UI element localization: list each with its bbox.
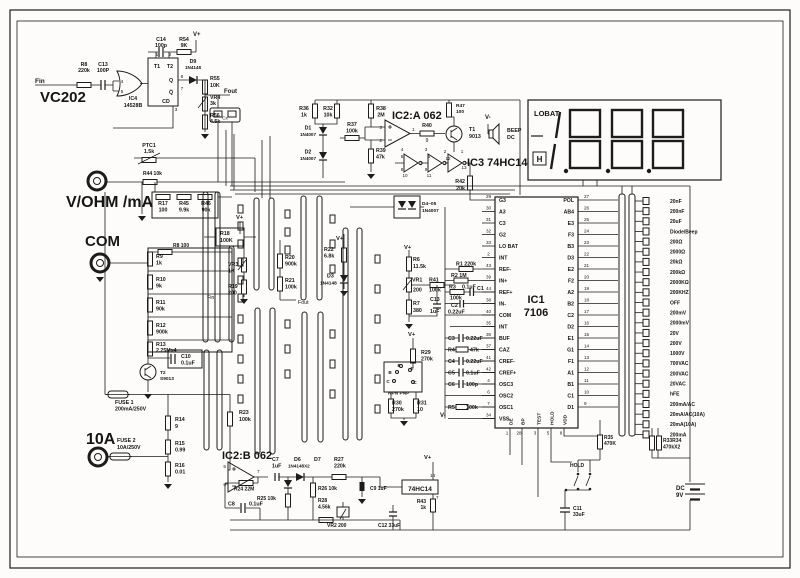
r23-val: 100k — [239, 417, 251, 423]
r3-val: 100k — [450, 296, 462, 302]
c11-val: 33uF — [573, 512, 585, 518]
range-item-18: 20VAC — [670, 382, 686, 388]
vr4-val: 3k — [210, 101, 216, 107]
d6-name: D6 — [294, 457, 301, 463]
cx-pad-right — [228, 111, 236, 117]
range-item-9: 200KHZ — [670, 290, 689, 296]
ground-symbol — [340, 291, 348, 296]
ic1-bpin-name-TEST: TEST — [537, 413, 543, 425]
transistor-socket-box — [384, 362, 422, 392]
switch-wafer-bar — [302, 312, 307, 442]
c9-electrolytic-icon — [360, 482, 365, 491]
ic1-lpin-num-41: 41 — [486, 355, 492, 360]
r56-val: 4.5k — [210, 119, 220, 125]
switch-wafer-bar — [204, 350, 209, 450]
switch-contact — [238, 375, 243, 383]
ic1-lpin-num-44: 44 — [486, 286, 492, 291]
r20-val: 900k — [285, 262, 297, 268]
switch-contact — [285, 345, 290, 353]
range-contact — [643, 411, 649, 418]
ic1-rpin-name-21: E2 — [568, 267, 574, 273]
range-contact — [643, 309, 649, 316]
switch-contact — [238, 222, 243, 230]
com-jack-label: COM — [85, 233, 120, 250]
ic1-lpin-num-42: 42 — [486, 367, 492, 372]
switch-contact — [285, 246, 290, 254]
ic1-lpin-name-44: REF+ — [499, 290, 512, 296]
vplus-a: V+ — [236, 215, 244, 221]
ic1-lpin-num-2: 2 — [487, 252, 490, 257]
range-contact — [643, 269, 649, 276]
hold-label: HOLD — [570, 463, 585, 469]
d2-val: 1N4007 — [300, 156, 317, 161]
inverter-icons — [404, 154, 466, 172]
range-contact — [643, 329, 649, 336]
r27-name: R27 — [334, 457, 344, 463]
pin-c2: C — [413, 380, 417, 385]
ground-symbol — [164, 484, 172, 489]
ic1-rpin-num-19: 19 — [584, 286, 590, 291]
switch-wafer-bar — [357, 228, 362, 440]
a10-jack — [89, 448, 107, 466]
ground-symbol — [400, 421, 408, 426]
ic1-rpin-num-24: 24 — [584, 229, 590, 234]
beep-l2: DC — [507, 135, 515, 141]
ic4-t1: T1 — [154, 64, 160, 70]
ic1-bpin-num-5: 5 — [547, 431, 550, 436]
c2-val: 0.22uF — [448, 310, 466, 316]
ic1-lpin-name-41: CREF- — [499, 359, 515, 365]
nine-v-label: 9V — [676, 493, 683, 499]
range-contact — [643, 258, 649, 265]
switch-contact — [375, 315, 380, 323]
switch-contact — [285, 228, 290, 236]
d3-name: D3 — [327, 274, 334, 280]
ic1-rpin-num-13: 13 — [584, 355, 590, 360]
ic4-pin6: 6 — [181, 74, 184, 80]
d3-val: 1N4148 — [320, 281, 337, 287]
ic1-lpin-num-32: 32 — [486, 229, 492, 234]
r3334-name: R33R34 — [663, 438, 682, 444]
r28-val: 4.56k — [318, 505, 331, 511]
range-item-13: 20V — [670, 331, 680, 337]
ic1-rpin-name-20: F2 — [568, 279, 574, 285]
ic1-lpin-name-38: IN- — [499, 302, 506, 308]
range-item-21: 20mA/AC(10A) — [670, 412, 705, 418]
c13b-val: 1uF — [430, 309, 440, 315]
ic1-lpin-name-33: LO BAT — [499, 244, 519, 250]
decimal-point — [564, 169, 568, 173]
r6-name: R6 — [413, 257, 420, 263]
r21-val: 100k — [285, 285, 297, 291]
range-contact — [643, 299, 649, 306]
fin2-label: Fin — [207, 295, 214, 301]
dc-label: DC — [676, 486, 685, 492]
c2-name: C2 — [451, 303, 458, 309]
switch-contact — [330, 265, 335, 273]
switch-contact — [330, 330, 335, 338]
range-item-0: 20nF — [670, 199, 682, 205]
t2-name: T2 — [160, 370, 166, 376]
vplus-b: V+ — [336, 236, 344, 242]
ic1-lpin-name-37: CAZ — [499, 348, 510, 354]
ic1-rpin-name-14: G1 — [567, 348, 574, 354]
switch-contact — [330, 390, 335, 398]
vplus-c: V+ — [404, 245, 412, 251]
fuse2-name: FUSE 2 — [117, 438, 136, 444]
vminus-a: V- — [485, 115, 491, 121]
r5-val: 100k — [466, 405, 478, 411]
ic1-lpin-name-4: OSC3 — [499, 382, 513, 388]
ic1-bpin-num-1: 1 — [506, 431, 509, 436]
range-item-5: 2000Ω — [670, 250, 685, 256]
c10-val: 0.1uF — [181, 361, 196, 367]
inv-p12: 12 — [445, 156, 451, 161]
r7-val: 380 — [413, 308, 422, 314]
c3-val: 0.22uF — [466, 336, 484, 342]
r14-val: 9 — [175, 424, 178, 430]
d9-val: 1N4148 — [185, 65, 202, 70]
vplus-e: V+ — [408, 332, 416, 338]
switch-wafer-bar — [255, 308, 260, 454]
vplus-osc: V+ — [193, 32, 201, 38]
r25-label: R25 10k — [257, 496, 276, 502]
ic1-bpin-name-HOLD: HOLD — [550, 411, 556, 425]
ic4-pin2: 2 — [169, 52, 172, 58]
inv-p6: 6 — [401, 154, 404, 159]
ic2b-label: IC2:B 062 — [222, 450, 272, 462]
r30-val: 270k — [392, 407, 404, 413]
switch-contact — [238, 395, 243, 403]
r8-val: 220k — [78, 68, 90, 74]
schematic-page: VC202 V/OHM /mA COM 10A IC2:A 062 IC2:B … — [0, 0, 800, 578]
r12-val: 900k — [156, 330, 168, 336]
ground-symbol — [144, 394, 152, 399]
switch-wafer-bar — [203, 192, 208, 342]
ic1-bpin-name-DE: DE — [509, 418, 515, 425]
range-item-7: 200kΩ — [670, 270, 685, 276]
ic4-t2: T2 — [167, 64, 173, 70]
r17-val: 100 — [159, 208, 168, 214]
switch-wafer-bar — [301, 196, 306, 300]
r40-name: R40 — [422, 123, 432, 129]
c7-name: C7 — [272, 457, 279, 463]
range-contact — [643, 248, 649, 255]
d45-val: 1N4007 — [422, 208, 439, 214]
switch-contact — [330, 360, 335, 368]
r15-name: R15 — [175, 441, 185, 447]
ic1-lpin-name-40: COM — [499, 313, 511, 319]
decimal-point — [606, 169, 610, 173]
ground-symbol — [201, 134, 209, 139]
r39-name: R39 — [376, 148, 386, 154]
range-item-8: 2000KΩ — [670, 280, 689, 286]
beep-l1: BEEP — [507, 128, 522, 134]
ic1-rpin-num-21: 21 — [584, 263, 590, 268]
switch-wafer-bar — [254, 198, 259, 290]
pin-e2: E — [410, 366, 413, 371]
ic1-rpin-num-25: 25 — [584, 217, 590, 222]
fout-osc: Fout — [224, 89, 237, 95]
schematic-canvas: VC202 V/OHM /mA COM 10A IC2:A 062 IC2:B … — [0, 0, 800, 578]
r36-val: 1k — [301, 113, 307, 119]
vminus-b: V- — [440, 413, 446, 419]
r46-val: 90k — [202, 208, 211, 214]
ic1-lpin-name-6: OSC2 — [499, 394, 513, 400]
ic1-lpin-num-29: 29 — [486, 194, 492, 199]
c5-name: C5 — [448, 371, 455, 377]
ic2a-label: IC2:A 062 — [392, 110, 442, 122]
vohm-jack-label: V/OHM /mA — [66, 194, 154, 211]
ic1-bpin-num-8: 8 — [560, 431, 563, 436]
r41-val: 100k — [429, 288, 441, 294]
ic1-rpin-name-17: C2 — [567, 313, 574, 319]
r3334-val: 470kX2 — [663, 445, 680, 451]
range-contact — [643, 360, 649, 367]
r19-name: R19 — [228, 284, 238, 290]
switch-contact — [375, 375, 380, 383]
ic1-lpin-name-31: C3 — [499, 221, 506, 227]
lobat-label: LOBAT — [534, 109, 560, 118]
r2-label: R2 1M — [451, 273, 467, 279]
r19-val: 200 — [228, 291, 237, 297]
ic1-rpin-num-18: 18 — [584, 298, 590, 303]
r32-val: 10k — [324, 113, 333, 119]
pin-e1: E — [397, 363, 400, 368]
range-item-22: 20mA(10A) — [670, 422, 696, 428]
inv-p8: 8 — [401, 167, 404, 172]
r28-name: R28 — [318, 498, 327, 504]
ic1-lpin-name-7: OSC1 — [499, 405, 513, 411]
ic1-rpin-name-10: C1 — [567, 394, 574, 400]
range-contact — [643, 350, 649, 357]
r5-name: R5 — [448, 405, 455, 411]
switch-contact — [330, 215, 335, 223]
opb-pin5: 5 — [223, 464, 226, 470]
hc14-pin7: 7 — [436, 495, 439, 500]
gate-pin5: 5 — [121, 89, 124, 95]
r10-name: R10 — [156, 277, 166, 283]
ic1-lpin-num-43: 43 — [486, 263, 492, 268]
ic1-rpin-num-16: 16 — [584, 321, 590, 326]
r20-name: R20 — [285, 255, 295, 261]
range-contact — [643, 319, 649, 326]
range-item-19: hFE — [670, 392, 680, 398]
switch-contact — [285, 210, 290, 218]
ic1-lpin-num-37: 37 — [486, 344, 492, 349]
r13-val: 2.25Mx4 — [156, 348, 177, 354]
vr1-name: VR1 — [412, 278, 422, 284]
a10-jack-label: 10A — [86, 431, 116, 448]
r45-name: R45 — [179, 201, 189, 207]
range-contact — [643, 238, 649, 245]
com-jack — [91, 254, 109, 272]
c12-label: C12 33uF — [378, 523, 400, 529]
inv-p4: 4 — [401, 147, 404, 152]
ic1-rpin-name-27: POL — [563, 198, 574, 204]
r8b-label: R8 100 — [173, 243, 189, 249]
range-item-6: 20kΩ — [670, 260, 682, 266]
r21-name: R21 — [285, 278, 295, 284]
c1-name: C1 — [477, 286, 484, 292]
ic1-lpin-num-39: 39 — [486, 275, 492, 280]
ic1-lpin-num-33: 33 — [486, 240, 492, 245]
r46-name: R46 — [201, 201, 211, 207]
range-item-12: 2000mV — [670, 321, 690, 327]
r47-name: R47 — [456, 103, 465, 109]
c13a-val: 100P — [97, 68, 110, 74]
ic1-rpin-name-25: E3 — [568, 221, 574, 227]
opb-pin7: 7 — [257, 469, 260, 475]
ic1-bpin-name-VDD: VDD — [563, 414, 569, 425]
fuse1-name: FUSE 1 — [115, 400, 134, 406]
switch-wafer-bar — [619, 194, 625, 436]
vr2-trimmer-icon — [337, 507, 349, 517]
fin-label: Fin — [35, 78, 45, 85]
range-item-17: 200VAC — [670, 371, 689, 377]
resistor-icons — [77, 50, 662, 523]
r3-name: R3 — [449, 285, 456, 291]
r39-val: 47k — [376, 155, 385, 161]
c8-name: C8 — [228, 502, 235, 508]
lcd-digits — [531, 110, 683, 173]
beeper-icon — [489, 124, 499, 144]
opb-pin6: 6 — [223, 482, 226, 488]
vr2-label: VR2 200 — [327, 523, 347, 529]
r38-val: 2M — [377, 113, 385, 119]
ic1-rpin-num-12: 12 — [584, 367, 590, 372]
ic1-rpin-name-11: B1 — [567, 382, 574, 388]
inv-p13: 13 — [461, 165, 467, 170]
c9-label: C9 1uF — [370, 486, 387, 492]
d45-name: D4~05 — [422, 201, 437, 207]
vohm-jack — [88, 172, 106, 190]
ic1-rpin-name-12: A1 — [567, 371, 574, 377]
switch-contact — [238, 240, 243, 248]
ic1-lpin-name-30: A3 — [499, 210, 506, 216]
switch-contact — [238, 315, 243, 323]
r16-name: R16 — [175, 463, 185, 469]
range-contact — [643, 380, 649, 387]
ic1-lpin-num-38: 38 — [486, 298, 492, 303]
vr1-val: 200 — [413, 288, 422, 294]
r27-val: 220k — [334, 464, 346, 470]
ic1-rpin-name-23: B3 — [567, 244, 574, 250]
r42-val: 20k — [456, 186, 465, 192]
r45-val: 9.9k — [179, 208, 189, 214]
c6-name: C6 — [448, 382, 455, 388]
vr3-name: VR3 — [228, 262, 238, 268]
ic1-lpin-num-40: 40 — [486, 309, 492, 314]
ic1-rpin-num-22: 22 — [584, 252, 590, 257]
c5-val: 0.1uF — [466, 371, 481, 377]
c6-val: 100p — [466, 382, 479, 388]
ic4-pin1: 1 — [156, 52, 159, 58]
cx-name: Cx — [222, 116, 228, 122]
ic1-bpin-num-28: 28 — [516, 431, 522, 436]
switch-wafer-bar — [269, 198, 274, 290]
ic1-rpin-name-15: E1 — [568, 336, 574, 342]
range-contact — [643, 208, 649, 215]
hold-flag-label: H — [537, 155, 543, 164]
switch-contact — [375, 285, 380, 293]
ground-symbol — [367, 174, 375, 179]
c4-val: 0.22uF — [466, 359, 484, 365]
range-contact — [643, 340, 649, 347]
switch-wafer-bar — [343, 228, 348, 440]
r29-val: 270k — [421, 357, 433, 363]
r38-name: R38 — [376, 106, 386, 112]
r16-val: 0.01 — [175, 470, 185, 476]
r22-val: 6.8k — [324, 254, 334, 260]
range-item-11: 200mV — [670, 310, 687, 316]
t2-val: S9013 — [160, 376, 174, 382]
switch-wafer-bar — [629, 194, 635, 436]
range-item-1: 200nF — [670, 209, 684, 215]
range-contact — [643, 390, 649, 397]
gate-pin4: 4 — [121, 79, 124, 85]
inv-p2: 2 — [444, 149, 447, 154]
range-contact — [643, 228, 649, 235]
range-contact — [643, 279, 649, 286]
ic1-lpin-num-6: 6 — [487, 390, 490, 395]
range-contact — [643, 421, 649, 428]
c13b-name: C13 — [430, 297, 440, 303]
ic1-rpin-name-26: AB4 — [564, 210, 574, 216]
ic4-qb: Q̅ — [169, 89, 173, 96]
r40-val: 9 — [426, 138, 429, 144]
r12-name: R12 — [156, 323, 166, 329]
ground-symbol — [138, 216, 146, 221]
ic1-rpin-num-27: 27 — [584, 194, 590, 199]
d4-d5-box — [394, 196, 420, 218]
range-item-15: 1000V — [670, 351, 685, 357]
inv-p5: 5 — [428, 154, 431, 159]
c8-val: 0.1uF — [249, 502, 264, 508]
r18-name: R18 — [220, 231, 230, 237]
ic4-pin7: 7 — [181, 86, 184, 92]
range-contact — [643, 218, 649, 225]
r24-label: R24 22M — [234, 487, 254, 493]
range-item-4: 200Ω — [670, 239, 682, 245]
ic1-rpin-name-18: B2 — [567, 302, 574, 308]
digit-one — [551, 112, 560, 169]
digit-8-top — [570, 110, 600, 137]
r11-name: R11 — [156, 300, 165, 306]
d1-name: D1 — [305, 126, 312, 132]
ic1-rpin-num-9: 9 — [584, 401, 587, 406]
opa-pin2: 2 — [379, 138, 382, 144]
switch-wafer-bar — [270, 308, 275, 454]
r26-label: R26 10k — [318, 486, 337, 492]
ic1-bpin-num-3: 3 — [534, 431, 537, 436]
ic1-rpin-name-9: D1 — [567, 405, 574, 411]
r29-name: R29 — [421, 350, 431, 356]
c10-name: C10 — [181, 354, 191, 360]
opa-pin3: 3 — [379, 125, 382, 131]
r17-name: R17 — [158, 201, 168, 207]
r47-val: 100 — [456, 109, 464, 115]
switch-contact — [238, 355, 243, 363]
ic1-lpin-num-7: 7 — [487, 401, 490, 406]
r42-name: R42 — [455, 179, 465, 185]
range-item-10: OFF — [670, 300, 680, 306]
input-jacks — [88, 172, 109, 466]
r54-val: 9K — [181, 43, 188, 49]
ic1-lpin-name-32: G2 — [499, 233, 506, 239]
ic1-rpin-num-14: 14 — [584, 344, 590, 349]
ic1-lpin-num-4: 4 — [487, 378, 490, 383]
